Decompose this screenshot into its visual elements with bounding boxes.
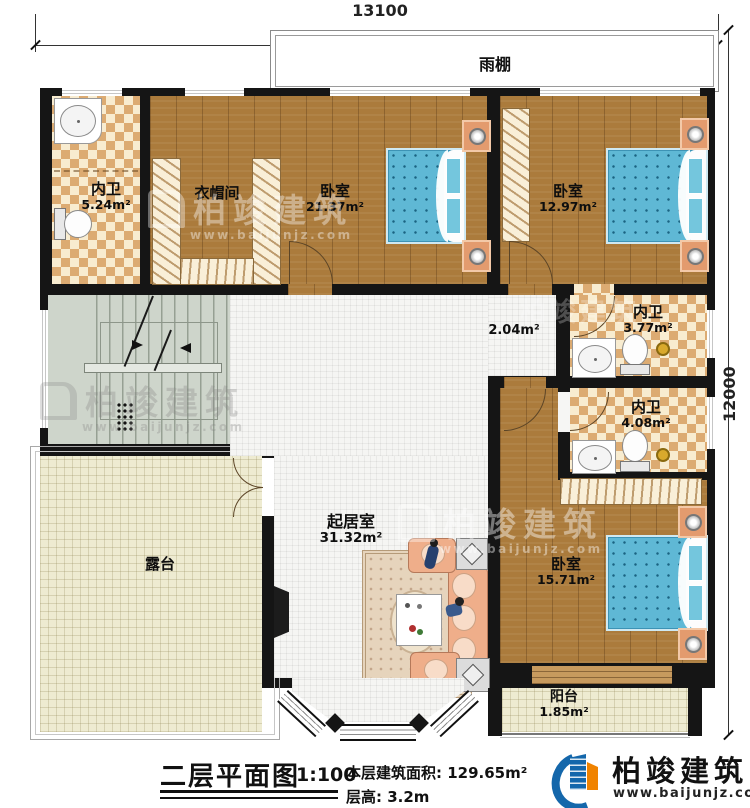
bedroom2-label: 卧室 12.97m² (530, 183, 606, 215)
stair-arrow (180, 343, 191, 353)
sink-counter (572, 338, 616, 378)
side-table (456, 538, 488, 570)
window (540, 88, 700, 96)
nightstand (462, 120, 491, 152)
bathroom1-label: 内卫 5.24m² (62, 181, 150, 213)
wardrobe (180, 258, 254, 285)
person-head (430, 539, 438, 547)
bedroom1-label: 卧室 21.37m² (297, 183, 373, 215)
wardrobe (252, 158, 281, 285)
cloakroom-label: 衣帽间 (181, 185, 253, 202)
floor-drain (656, 342, 670, 356)
brand-site: www.baijunjz.com (613, 786, 750, 801)
table-decor (417, 604, 422, 609)
sink-icon (578, 445, 612, 471)
brand-logo (552, 748, 604, 804)
nightstand (680, 240, 709, 272)
window (707, 310, 715, 358)
nightstand (462, 240, 491, 272)
living-label: 起居室 31.32m² (307, 513, 395, 547)
balcony-rail-outer (500, 737, 690, 738)
coffee-table (396, 594, 442, 646)
nightstand (678, 628, 707, 660)
pillow (688, 545, 703, 581)
sink-counter (54, 98, 102, 144)
title-rule-thin (160, 797, 338, 799)
wardrobe (560, 478, 702, 505)
bay-window-glass (340, 724, 416, 741)
balcony-wall (688, 688, 702, 736)
floor-plan: 13100 12000 雨棚 露台 内卫 5.24m² 衣帽间 (0, 0, 750, 808)
wardrobe (152, 158, 181, 285)
door-threshold (288, 284, 332, 295)
window (62, 88, 122, 96)
balcony-label: 阳台 1.85m² (532, 689, 596, 719)
toilet-tank (620, 364, 650, 375)
table-decor (405, 603, 410, 608)
sink-icon (578, 345, 612, 373)
toilet-tank (620, 461, 650, 472)
floor-drain (656, 448, 670, 462)
balcony-wall (488, 688, 502, 736)
terrace-label: 露台 (128, 556, 192, 573)
stair-column (116, 402, 134, 432)
stair-handrail (84, 363, 222, 373)
terrace-floor (40, 456, 262, 732)
door-threshold (574, 284, 614, 295)
wardrobe (502, 108, 530, 242)
dimension-top: 13100 (335, 2, 425, 20)
double-bed (606, 148, 708, 244)
double-bed (386, 148, 466, 244)
window (707, 397, 715, 449)
double-bed (606, 535, 708, 631)
toilet-icon (622, 334, 648, 366)
pillow (688, 198, 703, 234)
balcony-sill (532, 666, 672, 684)
brand-name: 柏竣建筑 (612, 748, 748, 790)
sink-icon (60, 105, 96, 137)
logo-building-blue (570, 754, 586, 790)
plan-title: 二层平面图 (160, 756, 300, 793)
floor-height-text: 层高: 3.2m (346, 786, 429, 807)
armchair-cushion (424, 659, 448, 681)
dimension-right: 12000 (721, 364, 739, 424)
door-gap (558, 392, 570, 432)
flower-decor (409, 625, 416, 632)
window (185, 88, 244, 96)
sofa-cushion (452, 573, 476, 599)
tv (274, 586, 289, 638)
window (40, 310, 48, 428)
door-threshold (504, 377, 546, 388)
pillow (688, 585, 703, 621)
bathroom2-label: 内卫 3.77m² (604, 304, 692, 336)
lobby-area-label: 2.04m² (482, 324, 546, 339)
window (330, 88, 470, 96)
bedroom3-label: 卧室 15.71m² (526, 556, 606, 588)
pillow (446, 198, 461, 234)
toilet-icon (64, 210, 92, 238)
bay-window-floor (292, 678, 464, 722)
flower-decor (417, 629, 423, 635)
toilet-icon (622, 430, 648, 462)
stair-arrow (132, 340, 143, 350)
pillow (446, 158, 461, 194)
pillow (688, 158, 703, 194)
bathroom3-label: 内卫 4.08m² (602, 399, 690, 431)
shower-divider (54, 170, 138, 172)
floor-area-text: 本层建筑面积: 129.65m² (346, 762, 527, 783)
terrace-door-gap (262, 458, 274, 516)
sink-counter (572, 440, 616, 474)
nightstand (678, 506, 707, 538)
canopy-label: 雨棚 (458, 56, 532, 74)
person-head (455, 597, 464, 606)
title-rule-thick (160, 790, 338, 793)
door-threshold (508, 284, 552, 295)
hall-floor (230, 295, 488, 456)
balcony-rail (502, 733, 688, 735)
nightstand (680, 118, 709, 150)
